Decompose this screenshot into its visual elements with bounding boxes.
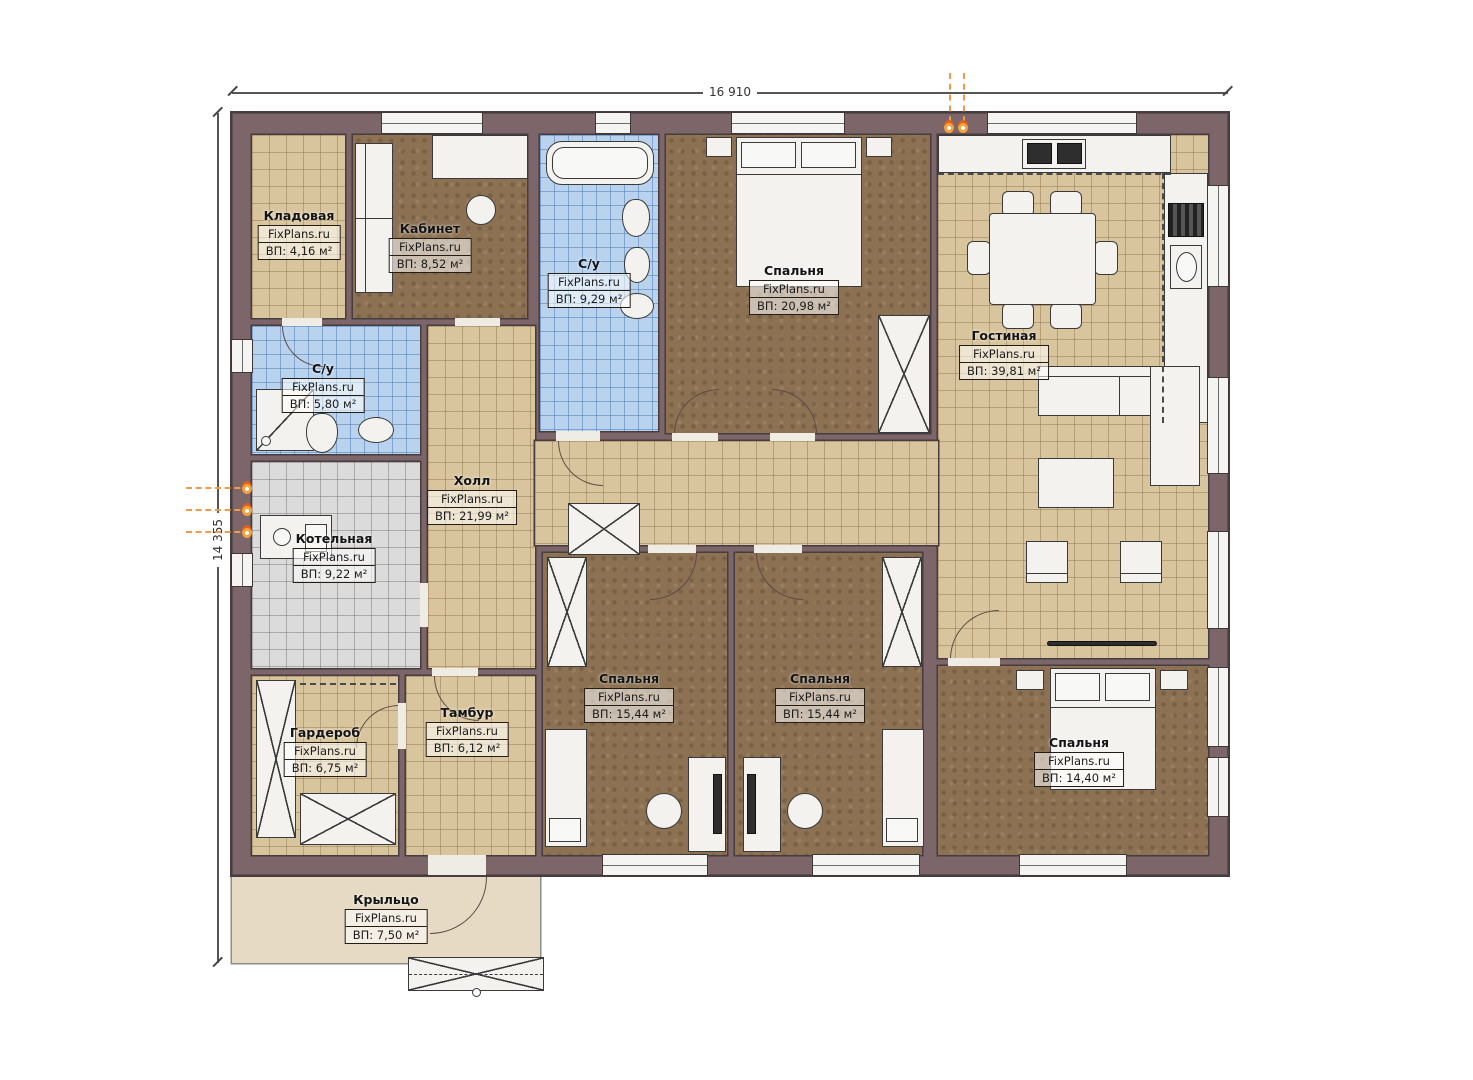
wardrobe-shelf [300,683,396,685]
window [732,113,844,133]
desk-chair [646,793,682,829]
dining-chair [1050,303,1082,329]
room-area: ВП: 9,22 м² [294,565,375,582]
room-name: Спальня [775,671,865,686]
window [1208,758,1228,816]
kitchen-counter-edge [938,173,1171,175]
room-area: ВП: 6,12 м² [427,739,508,756]
door-opening [432,668,478,676]
gas-flame-icon [242,503,252,516]
porch-step-node [472,988,481,997]
watermark: FixPlans.ru [776,689,864,705]
bathroom-sink [358,417,394,443]
watermark: FixPlans.ru [427,723,508,739]
gas-flame-icon [242,481,252,494]
single-bed [545,729,587,847]
window [232,340,252,372]
kitchen-sink [1170,245,1202,289]
wardrobe-closet [300,793,396,845]
room-name: Кладовая [258,208,341,223]
ottoman [1026,541,1068,583]
dining-chair [1002,303,1034,329]
nightstand [866,137,892,157]
bathtub [546,141,654,185]
single-bed [882,729,924,847]
desk-chair [787,793,823,829]
room-area: ВП: 21,99 м² [428,507,516,524]
room-label-holl: Холл FixPlans.ruВП: 21,99 м² [427,473,517,525]
room-label-bedroom-br: Спальня FixPlans.ruВП: 14,40 м² [1034,735,1124,787]
dimension-tick [1222,86,1232,96]
door-opening [556,431,600,441]
window [232,554,252,586]
window [1020,855,1126,875]
gas-line-marker [186,487,250,489]
watermark: FixPlans.ru [259,226,340,242]
watermark: FixPlans.ru [428,491,516,507]
door-opening [770,433,815,441]
room-area: ВП: 9,29 м² [549,290,630,307]
building-outline: Кладовая FixPlans.ruВП: 4,16 м² Кабинет … [232,113,1228,875]
porch-steps [408,957,544,991]
hall-cabinet [568,503,640,555]
watermark: FixPlans.ru [585,689,673,705]
room-name: Кабинет [389,221,472,236]
window [813,855,919,875]
window [1208,378,1228,473]
room-area: ВП: 7,50 м² [346,926,427,943]
door-opening [948,658,1000,666]
window [596,113,630,133]
dimension-width-label: 16 910 [703,85,757,99]
room-area: ВП: 4,16 м² [259,242,340,259]
nightstand [706,137,732,157]
wardrobe-cabinet [878,315,930,433]
watermark: FixPlans.ru [1035,753,1123,769]
window [382,113,482,133]
dimension-tick [227,86,237,96]
watermark: FixPlans.ru [283,379,364,395]
nightstand [1160,670,1188,690]
desk [688,757,726,852]
stove-cooktop [1022,139,1086,169]
room-label-tambur: Тамбур FixPlans.ruВП: 6,12 м² [426,705,509,757]
coffee-table [1038,458,1114,508]
door-opening [648,545,696,553]
gas-flame-icon [958,120,968,133]
door-opening [455,318,500,326]
room-name: Спальня [1034,735,1124,750]
door-opening [754,545,802,553]
room-label-kabinet: Кабинет FixPlans.ruВП: 8,52 м² [389,221,472,273]
dining-table [989,213,1096,305]
room-label-kryltso: Крыльцо FixPlans.ruВП: 7,50 м² [345,892,428,944]
entrance-door-opening [428,855,486,875]
watermark: FixPlans.ru [390,239,471,255]
dining-chair [967,241,991,275]
wardrobe-cabinet [547,557,587,667]
office-desk [432,135,528,179]
gas-flame-icon [944,120,954,133]
room-label-gostinaya: Гостиная FixPlans.ruВП: 39,81 м² [959,328,1049,380]
room-name: С/у [548,256,631,271]
room-name: Спальня [749,263,839,278]
watermark: FixPlans.ru [346,910,427,926]
room-name: С/у [282,361,365,376]
window [1208,186,1228,286]
room-area: ВП: 20,98 м² [750,297,838,314]
toilet [622,199,650,237]
watermark: FixPlans.ru [285,743,366,759]
dining-chair [1094,241,1118,275]
room-name: Гардероб [284,725,367,740]
gas-line-marker [186,531,250,533]
room-name: Спальня [584,671,674,686]
office-sofa [355,143,393,293]
room-label-bedroom-b1: Спальня FixPlans.ruВП: 15,44 м² [584,671,674,723]
room-name: Тамбур [426,705,509,720]
tv [1047,641,1157,646]
room-area: ВП: 5,80 м² [283,395,364,412]
gas-line-marker [186,509,250,511]
watermark: FixPlans.ru [549,274,630,290]
watermark: FixPlans.ru [750,281,838,297]
door-opening [420,583,428,627]
room-name: Крыльцо [345,892,428,907]
room-label-bedroom-top: Спальня FixPlans.ruВП: 20,98 м² [749,263,839,315]
room-label-garderob: Гардероб FixPlans.ruВП: 6,75 м² [284,725,367,777]
room-area: ВП: 15,44 м² [585,705,673,722]
gas-flame-icon [242,525,252,538]
window [603,855,707,875]
dimension-height-label: 14 355 [211,513,225,567]
room-name: Гостиная [959,328,1049,343]
room-name: Котельная [293,531,376,546]
toilet [306,413,338,453]
nightstand [1016,670,1044,690]
room-label-kladovaya: Кладовая FixPlans.ruВП: 4,16 м² [258,208,341,260]
room-label-su-top: С/у FixPlans.ruВП: 9,29 м² [548,256,631,308]
room-area: ВП: 6,75 м² [285,759,366,776]
wardrobe-cabinet [882,557,922,667]
room-area: ВП: 14,40 м² [1035,769,1123,786]
room-area: ВП: 39,81 м² [960,362,1048,379]
watermark: FixPlans.ru [294,549,375,565]
door-opening [282,318,322,326]
fridge [1168,203,1204,237]
door-opening [672,433,718,441]
room-area: ВП: 15,44 м² [776,705,864,722]
sofa-chaise [1150,366,1200,486]
window [1208,532,1228,628]
ottoman [1120,541,1162,583]
door-opening [398,703,406,749]
window [1208,668,1228,746]
kitchen-counter-edge [1162,173,1164,423]
room-label-bedroom-b2: Спальня FixPlans.ruВП: 15,44 м² [775,671,865,723]
room-area: ВП: 8,52 м² [390,255,471,272]
floor-plan-canvas: 16 910 14 355 [0,0,1473,1080]
room-label-kotelnaya: Котельная FixPlans.ruВП: 9,22 м² [293,531,376,583]
room-label-su-left: С/у FixPlans.ruВП: 5,80 м² [282,361,365,413]
watermark: FixPlans.ru [960,346,1048,362]
window [988,113,1136,133]
desk [743,757,781,852]
room-name: Холл [427,473,517,488]
